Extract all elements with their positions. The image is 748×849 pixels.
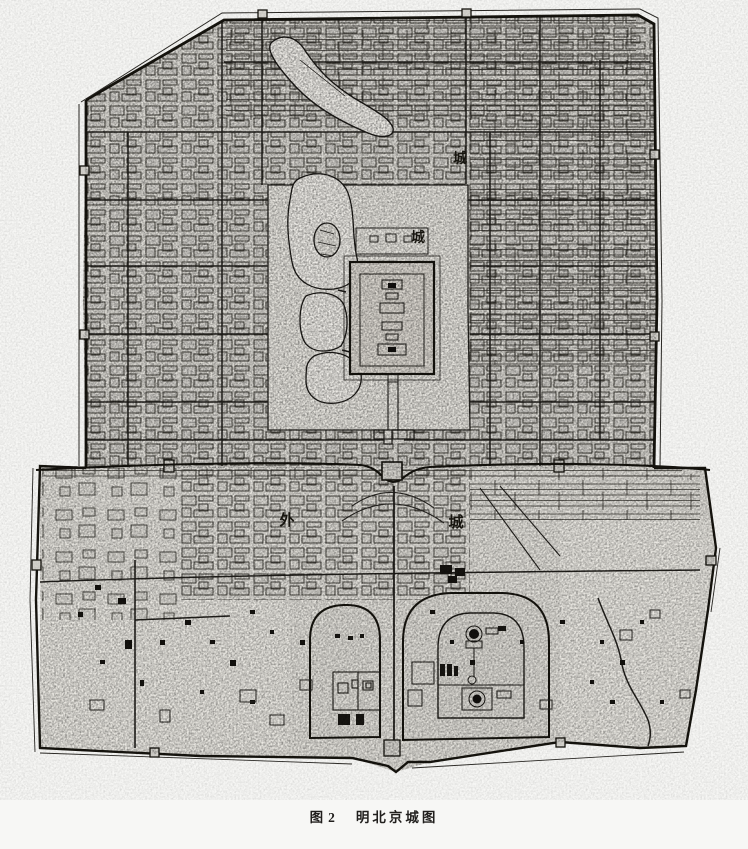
yongdingmen-gate <box>384 740 400 756</box>
label-inner-cheng-upper: 城 <box>453 150 467 167</box>
imperial-city <box>268 174 470 444</box>
label-inner-cheng-lower: 城 <box>411 229 425 246</box>
palace-wall <box>350 262 434 374</box>
rear-hall <box>388 347 396 352</box>
qionghua-island <box>314 223 340 257</box>
forbidden-city <box>344 256 440 382</box>
figure-title: 明北京城图 <box>356 810 439 825</box>
zhengyangmen-gate <box>382 462 402 480</box>
xiannongtan-altar <box>310 605 380 738</box>
zhonghai-lake <box>300 293 347 351</box>
figure-caption: 图2明北京城图 <box>0 806 748 826</box>
southwest-fields <box>40 600 290 750</box>
label-outer-wai: 外 <box>278 511 294 529</box>
label-outer-cheng: 城 <box>448 513 463 531</box>
huanqiu-altar <box>473 695 482 704</box>
scanned-page: 城 城 外 城 图2明北京城图 <box>0 0 748 849</box>
temple-of-heaven <box>403 593 549 740</box>
figure-number: 图2 <box>310 810 340 825</box>
taihe-hall <box>388 283 396 288</box>
qinian-hall <box>469 629 479 639</box>
ming-beijing-map: 城 城 外 城 <box>0 0 748 800</box>
